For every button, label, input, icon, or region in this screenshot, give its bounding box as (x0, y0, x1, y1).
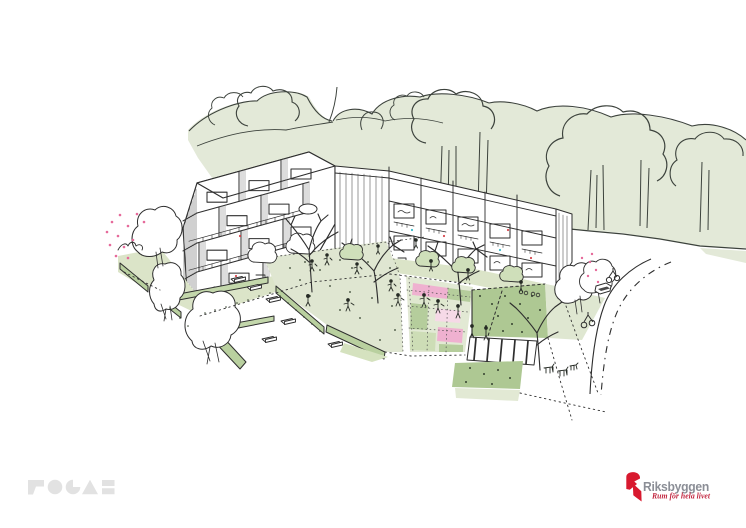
svg-text:Rum för hela livet: Rum för hela livet (651, 491, 710, 501)
